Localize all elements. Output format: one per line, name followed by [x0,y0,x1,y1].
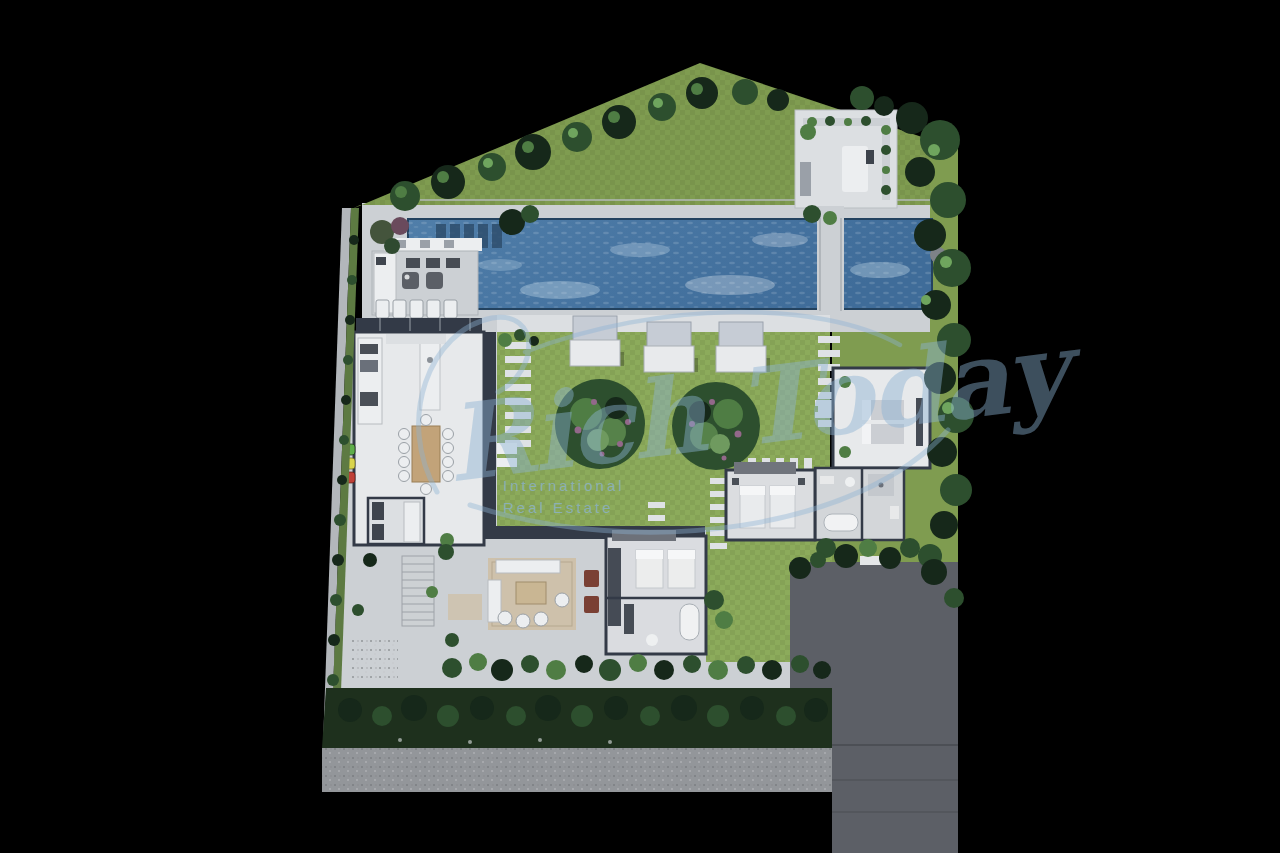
coffee-table [516,582,546,604]
side-rug [448,594,482,620]
vanity [624,604,634,634]
lounge-mat [800,162,811,196]
potted-tree [800,124,816,140]
sun-daybed [842,146,868,192]
upper-cabinets [386,334,446,344]
planter-pot [584,570,599,587]
gravel-pad [352,640,398,680]
sun-lounger-row [376,300,457,318]
sofa [496,560,560,573]
armchair [534,612,548,626]
bar-table [426,272,443,289]
bedroom-two [606,530,706,654]
bathtub [824,514,858,531]
toilet [646,634,658,646]
brand-tagline-line1: International [503,477,625,494]
site-plan-canvas: Rich Today International Real Estate [0,0,1280,853]
armchair [555,593,569,607]
planter-pot [584,596,599,613]
toilet [845,477,855,487]
swimming-pool [408,215,932,313]
brand-tagline-line2: Real Estate [503,499,614,516]
pool-bridge [817,215,844,313]
pantry-laundry [368,498,424,544]
wardrobe [608,548,621,626]
bar-table [402,272,419,289]
bathtub [680,604,699,640]
master-bedroom [726,462,815,540]
sink [820,476,834,484]
armchair [498,611,512,625]
site-plan-render: Rich Today International Real Estate [0,0,1280,853]
daybed-chair [866,150,874,164]
armchair [516,614,530,628]
